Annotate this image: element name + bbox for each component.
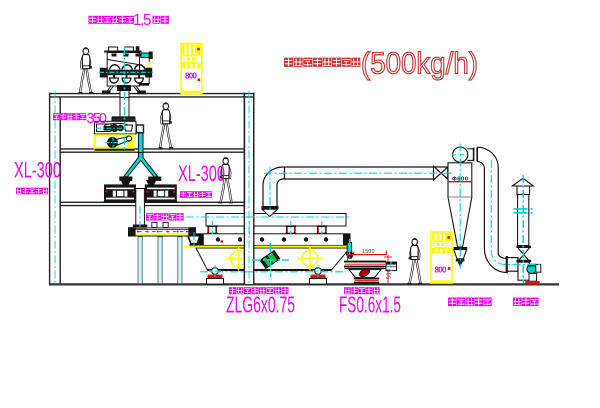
- svg-text:1500: 1500: [362, 249, 375, 255]
- svg-text:XL-300: XL-300: [178, 161, 225, 186]
- svg-text:FS0.6x1.5: FS0.6x1.5: [339, 292, 401, 318]
- svg-text:(500kg/h): (500kg/h): [361, 46, 478, 81]
- svg-text:350: 350: [87, 111, 108, 127]
- svg-text:800: 800: [185, 72, 198, 81]
- svg-text:Φ600: Φ600: [452, 177, 468, 183]
- svg-text:500: 500: [387, 269, 393, 279]
- svg-text:800: 800: [435, 266, 448, 275]
- svg-text:XL-300: XL-300: [14, 158, 61, 183]
- svg-text:ZLG6x0.75: ZLG6x0.75: [226, 292, 295, 318]
- svg-text:1.5: 1.5: [133, 12, 152, 29]
